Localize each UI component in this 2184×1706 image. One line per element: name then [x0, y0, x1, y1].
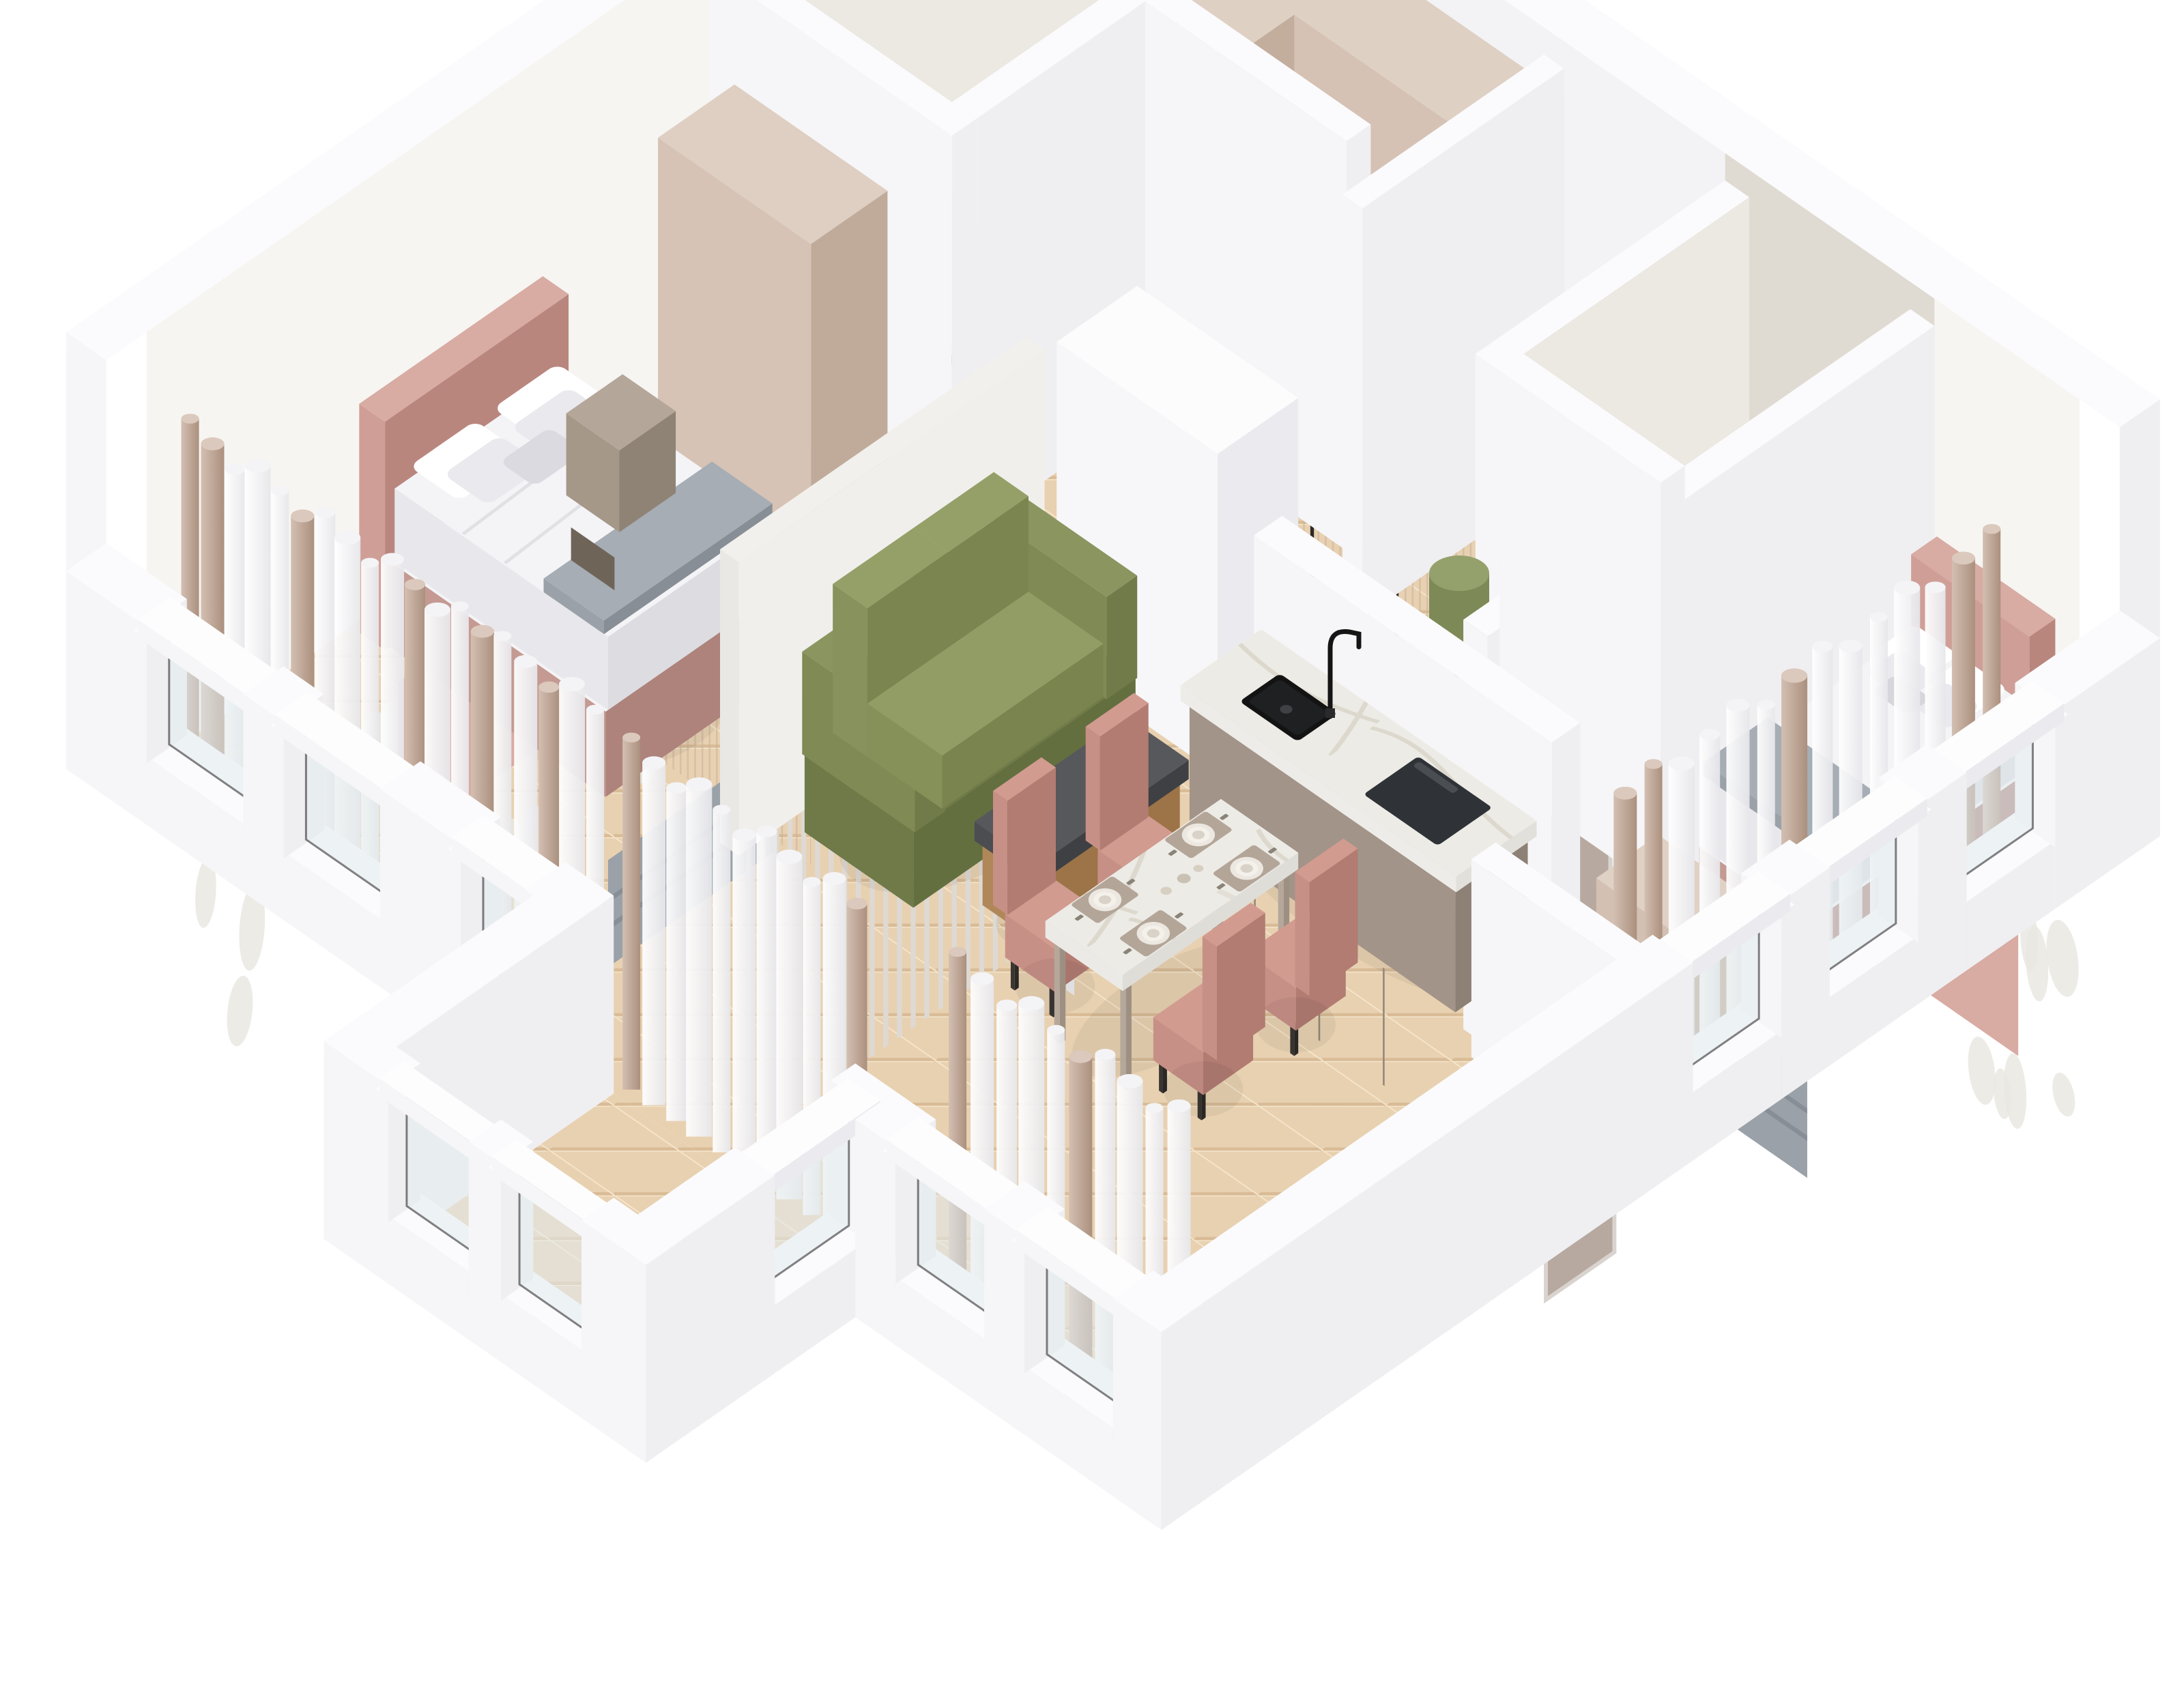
curtain-top-fold [1925, 581, 1946, 593]
sofa-back-cushion-face-sw [833, 584, 867, 757]
window-post-face-sw [882, 1151, 895, 1284]
curtain-top-fold [642, 756, 665, 769]
curtain-sheer-white [732, 828, 756, 1168]
curtain-top-fold [1645, 759, 1663, 768]
sofa-arm-face-se [1106, 576, 1137, 699]
curtain-top-fold [493, 631, 511, 641]
wall-solid-face-se [646, 1243, 678, 1463]
chair-leg-face-sw [1011, 959, 1015, 990]
curtain-top-fold [291, 510, 314, 523]
curtain-top-fold [451, 601, 469, 611]
curtain-top-fold [1812, 641, 1833, 652]
floorplan-stage [0, 0, 2184, 1706]
scene-root [0, 0, 2160, 1625]
wallpaper-leaf-motif [2026, 919, 2048, 1009]
window-post-face-se [1919, 809, 1931, 942]
curtain-top-fold [334, 530, 360, 545]
curtain-top-fold [996, 1000, 1017, 1011]
curtain-top-fold [1983, 524, 2000, 534]
faucet-base [1325, 708, 1335, 718]
curtain-top-fold [776, 850, 802, 864]
curtain-top-fold [823, 872, 846, 885]
curtain-top-fold [686, 777, 712, 792]
floorplan-render-3d [0, 0, 2184, 1706]
wall-solid [581, 1198, 678, 1462]
wallpaper-leaf-motif [2046, 910, 2078, 1007]
curtain-top-fold [1839, 639, 1863, 652]
curtain-top-fold [1069, 1050, 1092, 1063]
curtain-top-fold [405, 579, 425, 590]
chair-leg-face-sw [1159, 1062, 1163, 1093]
window-post-face-sw [375, 1089, 388, 1222]
chair-back-face-sw [1086, 727, 1100, 851]
window-post-face-sw [271, 725, 284, 858]
curtain-top-fold [361, 558, 379, 568]
wallpaper-leaf-motif [227, 968, 253, 1054]
curtain-sheer-white [686, 777, 712, 1136]
curtain-top-fold [586, 705, 604, 714]
curtain-top-fold [182, 414, 199, 423]
curtain-top-fold [1757, 700, 1775, 710]
curtain-top-fold [847, 898, 867, 910]
curtain-top-fold [315, 507, 335, 519]
curtain-top-fold [949, 947, 966, 957]
curtain-top-fold [1117, 1074, 1143, 1088]
curtain-top-fold [225, 463, 245, 475]
chair-back-face-sw [1295, 872, 1310, 996]
curtain-top-fold [622, 733, 640, 742]
table-leg [1120, 980, 1132, 1090]
wall-solid-face-sw [1121, 1304, 1162, 1530]
curtain-top-fold [1894, 581, 1920, 595]
wallpaper-leaf-motif [1968, 1028, 1996, 1113]
curtain-top-fold [1952, 552, 1975, 565]
window-post-face-sw [488, 1168, 501, 1301]
curtain-top-fold [1047, 1025, 1065, 1035]
curtain-top-fold [732, 828, 756, 841]
curtain-top-fold [1726, 699, 1749, 712]
curtain-top-fold [471, 625, 494, 638]
window-post-face-sw [134, 631, 147, 764]
curtain-top-fold [756, 826, 777, 837]
curtain-sheer-white [713, 805, 730, 1152]
curtain-top-fold [1146, 1103, 1164, 1112]
curtain-top-fold [971, 972, 994, 985]
curtain-top-fold [244, 459, 270, 473]
curtain-top-fold [1095, 1049, 1115, 1060]
curtain-top-fold [538, 682, 559, 693]
window-post-face-sw [1011, 1241, 1024, 1374]
curtain-top-fold [201, 437, 224, 450]
window-post-face-se [2055, 714, 2068, 848]
curtain-sheer-white [666, 782, 687, 1121]
curtain-top-fold [514, 655, 537, 668]
curtain-top-fold [1168, 1099, 1191, 1112]
curtain-taupe [622, 733, 640, 1090]
pouf-top [1429, 555, 1489, 591]
island-seam [1383, 968, 1385, 1086]
window-post-face-se [1781, 905, 1794, 1038]
chair-back-face-sw [1203, 936, 1217, 1060]
curtain-top-fold [559, 677, 585, 691]
curtain-top-fold [803, 877, 820, 886]
curtain-top-fold [381, 553, 404, 566]
curtain-top-fold [713, 805, 730, 814]
curtain-top-fold [1669, 756, 1695, 770]
curtain-top-fold [1613, 787, 1637, 800]
curtain-top-fold [425, 603, 450, 617]
curtain-top-fold [1870, 612, 1888, 622]
curtain-top-fold [1781, 669, 1807, 683]
curtain-top-fold [1018, 996, 1044, 1011]
table-leg-face-sw [1120, 984, 1125, 1090]
curtain-top-fold [271, 486, 289, 495]
wallpaper-leaf-motif [2052, 1067, 2075, 1123]
curtain-top-fold [1699, 729, 1720, 740]
curtain-top-fold [666, 782, 687, 794]
curtain-sheer-white [642, 756, 665, 1105]
chair-back-face-sw [993, 791, 1007, 915]
wall-entry-stub-face-sw [1342, 194, 1363, 618]
